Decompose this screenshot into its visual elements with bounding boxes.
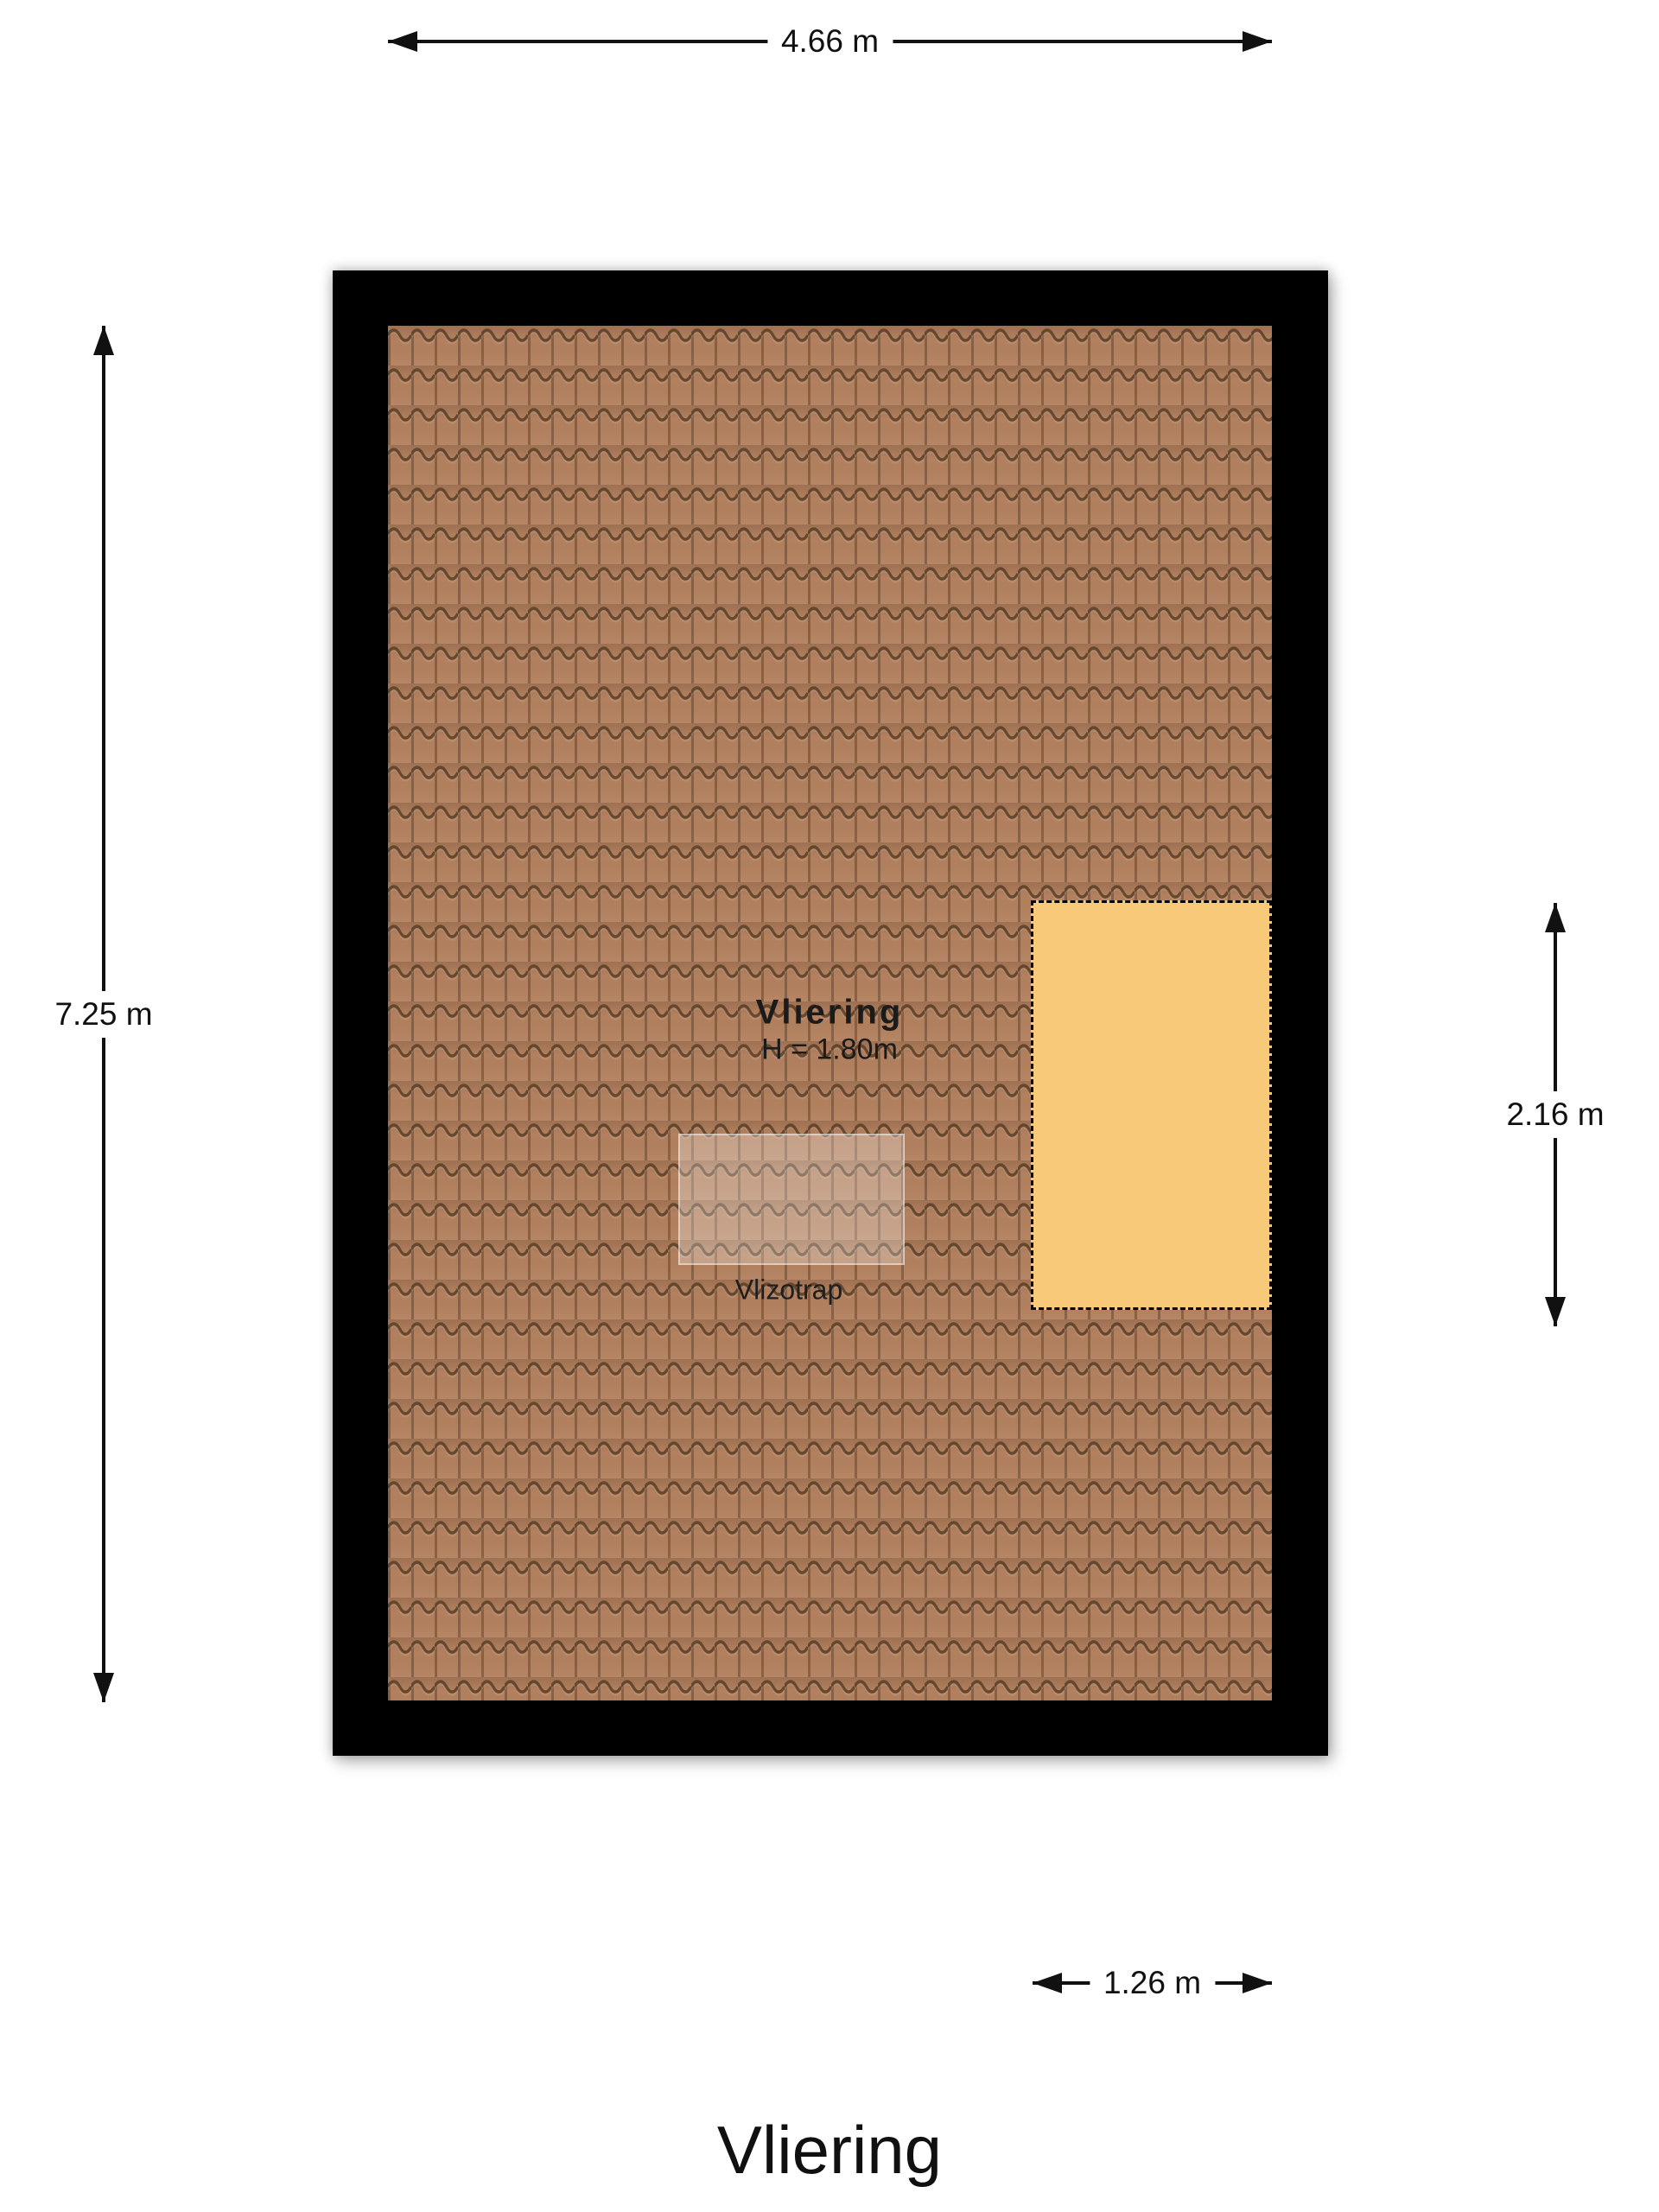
arrowhead-down-icon xyxy=(93,1673,114,1702)
page-title: Vliering xyxy=(0,2111,1659,2190)
arrowhead-left-icon xyxy=(388,31,417,52)
dimension-left-label: 7.25 m xyxy=(41,991,166,1038)
dimension-right-label: 2.16 m xyxy=(1492,1091,1618,1138)
arrowhead-down-icon xyxy=(1545,1297,1566,1326)
loft-floor-area xyxy=(1031,900,1272,1310)
arrowhead-up-icon xyxy=(93,326,114,355)
dimension-bottom-loft-width: 1.26 m xyxy=(1033,1966,1272,2000)
dimension-top-width: 4.66 m xyxy=(388,24,1272,59)
arrowhead-left-icon xyxy=(1033,1973,1062,1993)
room-label: Vliering xyxy=(756,994,904,1033)
dimension-right-loft-height: 2.16 m xyxy=(1538,903,1573,1326)
arrowhead-up-icon xyxy=(1545,903,1566,932)
room-height-label: H = 1.80m xyxy=(761,1033,898,1067)
vlizotrap-hatch xyxy=(678,1134,905,1265)
hatch-label: Vlizotrap xyxy=(735,1274,843,1306)
arrowhead-right-icon xyxy=(1243,31,1272,52)
dimension-bottom-label: 1.26 m xyxy=(1090,1960,1215,2006)
arrowhead-right-icon xyxy=(1243,1973,1272,1993)
dimension-left-height: 7.25 m xyxy=(86,326,121,1702)
floorplan-canvas: 4.66 m 7.25 m 2.16 m 1.26 m xyxy=(0,0,1659,2212)
dimension-top-label: 4.66 m xyxy=(767,18,893,65)
